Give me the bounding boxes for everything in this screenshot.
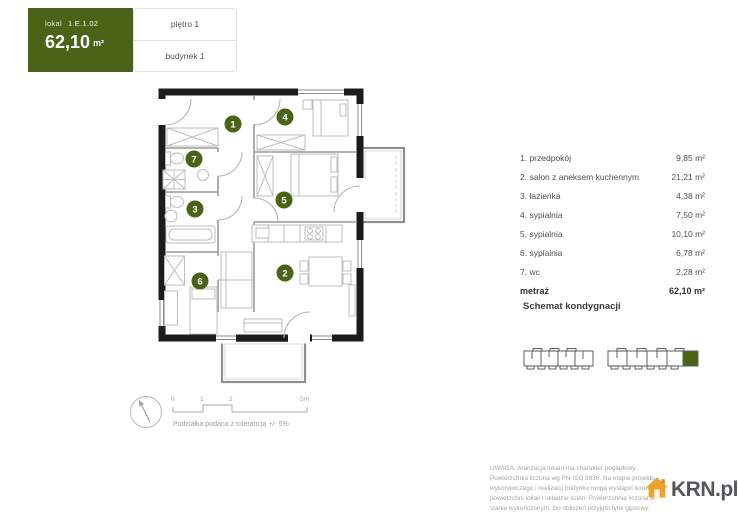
- room-label: 1. przedpokój: [520, 153, 571, 163]
- scale-line: [173, 405, 307, 412]
- svg-text:6: 6: [197, 276, 202, 287]
- disclaimer-text: UWAGA: Aranżacja lokalu ma charakter pog…: [490, 464, 666, 514]
- room-label: 7. wc: [520, 267, 540, 277]
- room-area: 2,28 m²: [676, 267, 705, 277]
- compass-icon: [127, 393, 165, 431]
- building-2-schematic: [607, 347, 699, 372]
- room-label: 5. sypialnia: [520, 229, 563, 239]
- room-label: 6. sypialnia: [520, 248, 563, 258]
- dining-set: [300, 257, 351, 286]
- scale-bar: 0 1 2 5m Podziałka podana z tolerancją +…: [165, 390, 325, 432]
- total-area: 62,10 m²: [669, 286, 705, 296]
- unit-area-unit: m²: [93, 38, 104, 48]
- scale-tolerance: Podziałka podana z tolerancją +/- 5%: [173, 421, 289, 428]
- svg-text:4: 4: [282, 112, 288, 123]
- bedroom5-furniture: [257, 154, 338, 196]
- svg-text:2: 2: [282, 268, 287, 279]
- room-row-2: 2. salon z aneksem kuchennym 21,21 m²: [520, 167, 705, 186]
- scale-tick-0: 0: [171, 396, 175, 403]
- floor-cell: piętro 1: [134, 9, 236, 40]
- corridor-wardrobe: [221, 252, 252, 308]
- room-marker-3: 3: [187, 201, 204, 218]
- building-cell: budynek 1: [134, 41, 236, 72]
- furniture: [163, 100, 355, 334]
- room-marker-6: 6: [192, 273, 209, 290]
- building-1-schematic: [523, 347, 594, 372]
- logo-text: KRN.pl: [671, 479, 738, 500]
- room-label: 3. łazienka: [520, 191, 561, 201]
- room-marker-7: 7: [186, 151, 203, 168]
- schemat-title: Schemat kondygnacji: [523, 301, 621, 312]
- room-row-5: 5. sypialnia 10,10 m²: [520, 224, 705, 243]
- room-row-6: 6. sypialnia 6,78 m²: [520, 243, 705, 262]
- kitchen-counter: [252, 225, 342, 242]
- scale-tick-2: 2: [229, 396, 233, 403]
- room-area: 9,85 m²: [676, 153, 705, 163]
- balcony-right: [362, 148, 404, 222]
- floor-plan: 1 2 3 4 5 6 7: [118, 78, 418, 393]
- balcony-bottom: [222, 341, 305, 382]
- room-area: 4,38 m²: [676, 191, 705, 201]
- highlighted-unit: [684, 352, 698, 366]
- scale-tick-5m: 5m: [300, 396, 309, 403]
- unit-meta-card: piętro 1 budynek 1: [133, 8, 237, 72]
- house-icon: [645, 475, 669, 500]
- scale-tick-1: 1: [200, 396, 204, 403]
- svg-text:7: 7: [191, 154, 196, 165]
- bedroom6-furniture: [165, 256, 218, 334]
- room-row-3: 3. łazienka 4,38 m²: [520, 186, 705, 205]
- bedroom4-furniture: [257, 100, 348, 150]
- room-list: 1. przedpokój 9,85 m² 2. salon z aneksem…: [520, 148, 705, 296]
- room-area: 10,10 m²: [671, 229, 705, 239]
- room-row-7: 7. wc 2,28 m²: [520, 262, 705, 281]
- tv-board: [349, 285, 355, 316]
- room-row-1: 1. przedpokój 9,85 m²: [520, 148, 705, 167]
- total-label: metraż: [520, 286, 549, 296]
- room-marker-4: 4: [277, 109, 294, 126]
- room-area: 7,50 m²: [676, 210, 705, 220]
- room-marker-1: 1: [225, 116, 242, 133]
- unit-summary-card: lokal1.E.1.02 62,10m²: [28, 8, 133, 72]
- unit-area: 62,10m²: [45, 32, 133, 53]
- unit-id-line: lokal1.E.1.02: [45, 19, 133, 28]
- room-area: 21,21 m²: [671, 172, 705, 182]
- svg-text:3: 3: [192, 204, 197, 215]
- room-row-4: 4. sypialnia 7,50 m²: [520, 205, 705, 224]
- room-marker-2: 2: [277, 265, 294, 282]
- lokal-label: lokal: [45, 19, 62, 28]
- sofa: [244, 319, 282, 332]
- room-label: 4. sypialnia: [520, 210, 563, 220]
- hall-wardrobe: [167, 128, 218, 146]
- room-marker-5: 5: [276, 192, 293, 209]
- total-row: metraż 62,10 m²: [520, 286, 705, 296]
- lokal-id: 1.E.1.02: [68, 19, 98, 28]
- krn-logo[interactable]: KRN.pl: [645, 475, 738, 500]
- svg-text:1: 1: [230, 119, 236, 130]
- room-area: 6,78 m²: [676, 248, 705, 258]
- room-label: 2. salon z aneksem kuchennym: [520, 172, 639, 182]
- unit-area-value: 62,10: [45, 32, 90, 52]
- svg-text:5: 5: [281, 195, 287, 206]
